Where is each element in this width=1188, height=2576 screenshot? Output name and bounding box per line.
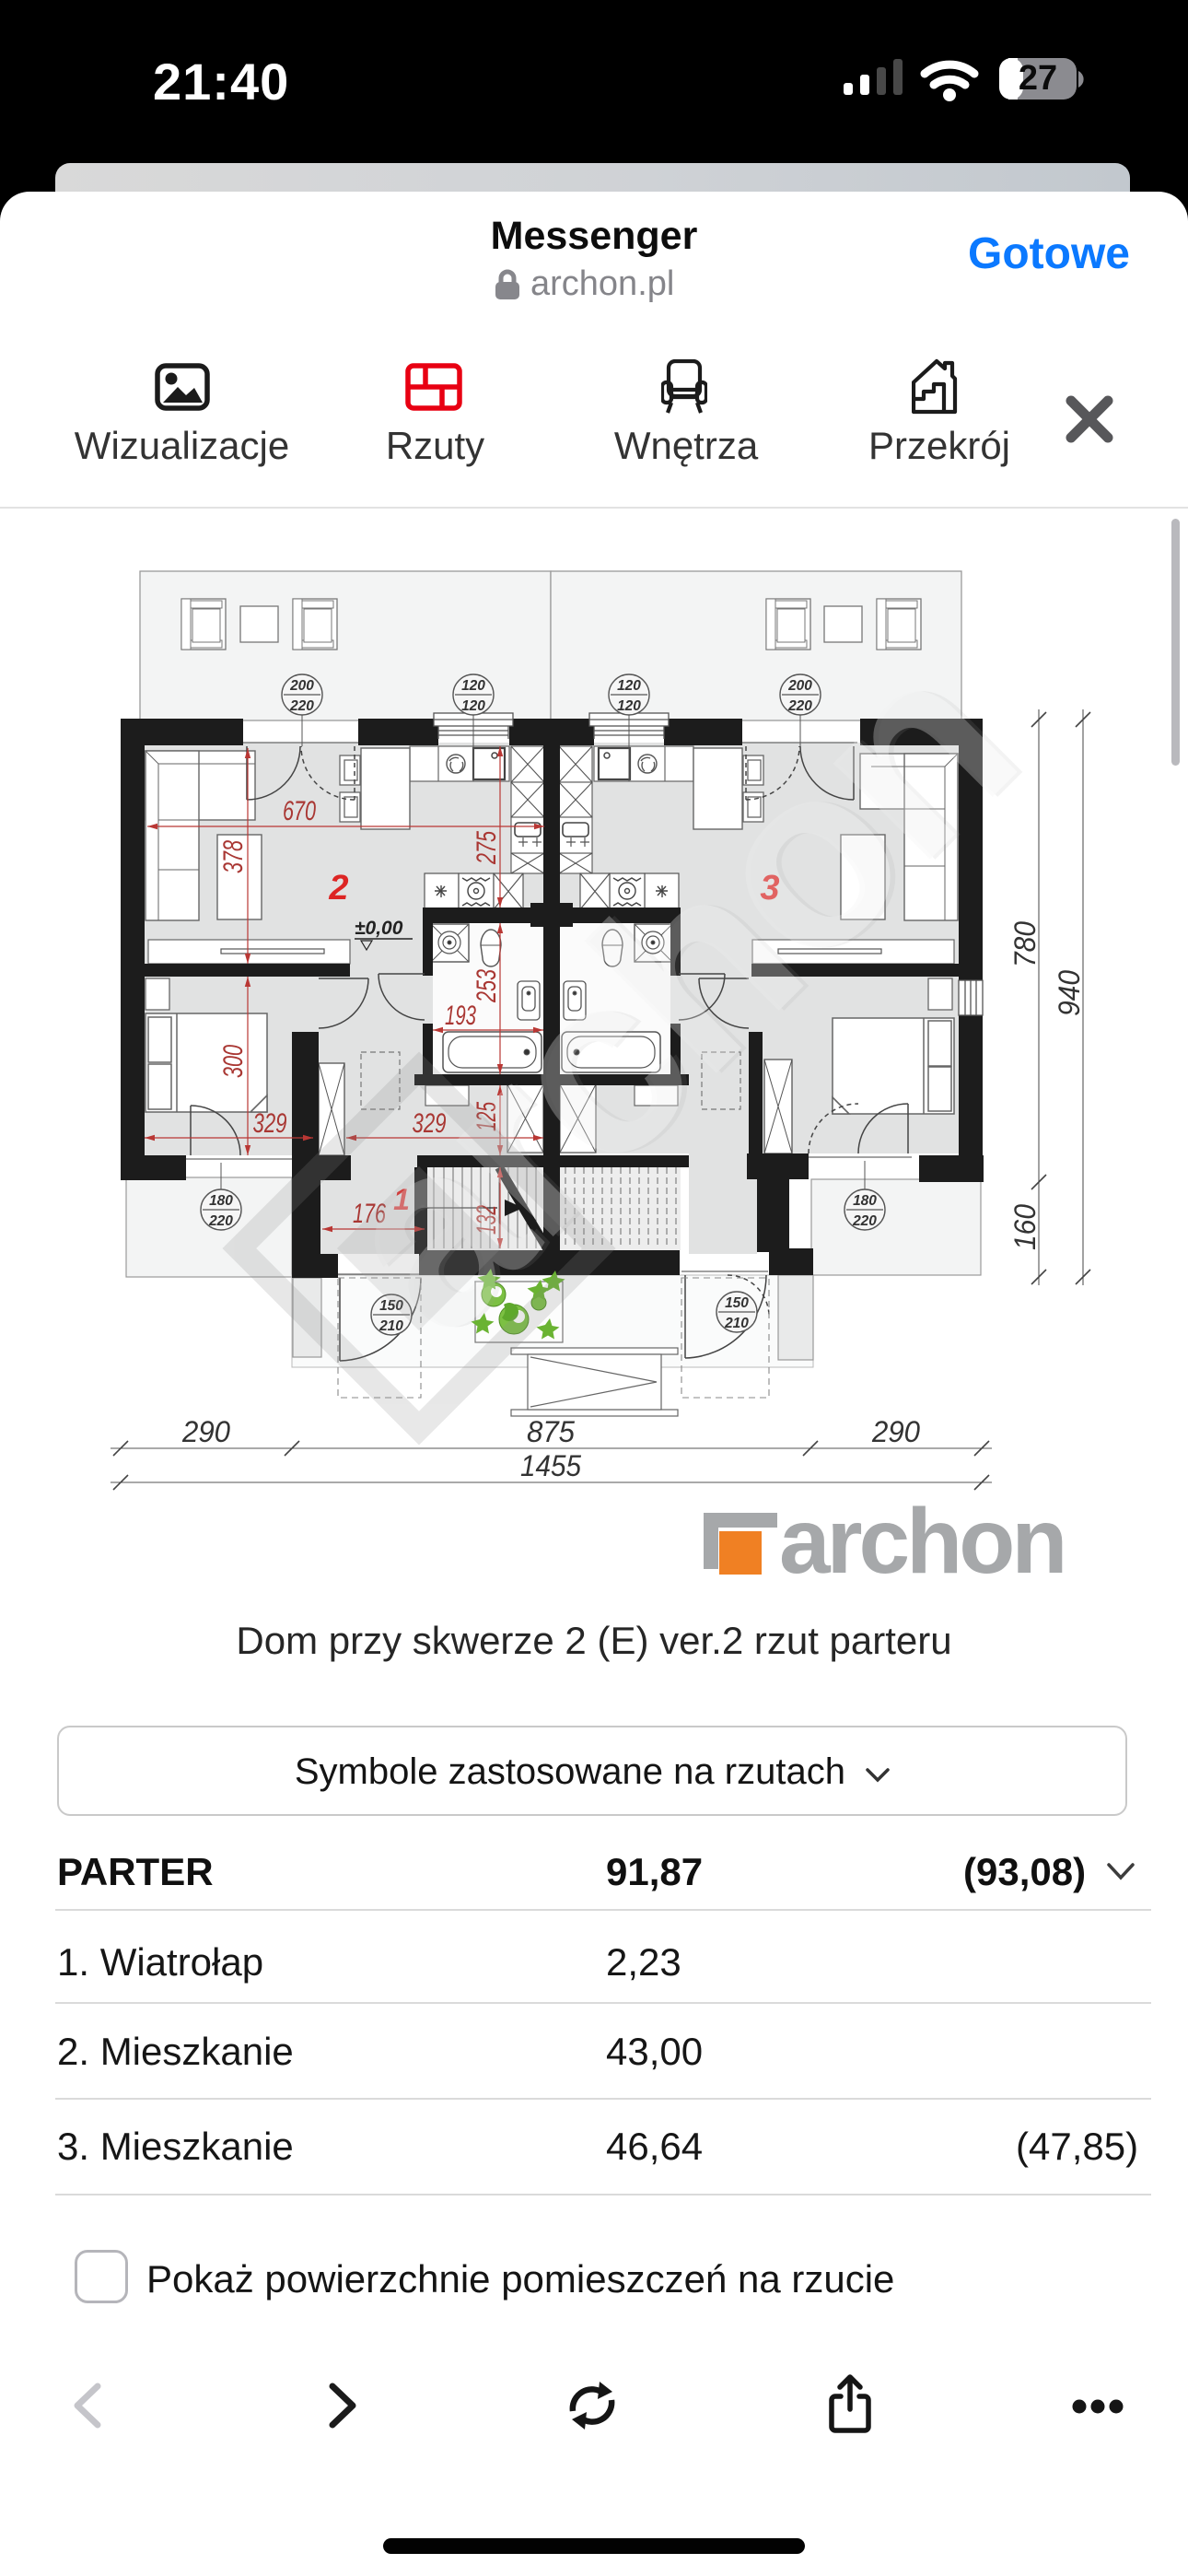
- svg-text:220: 220: [852, 1213, 877, 1229]
- svg-text:150: 150: [725, 1295, 749, 1311]
- svg-text:120: 120: [461, 698, 485, 714]
- svg-text:275: 275: [472, 831, 502, 865]
- svg-text:2: 2: [328, 869, 348, 907]
- svg-text:670: 670: [283, 796, 316, 826]
- svg-text:220: 220: [208, 1213, 233, 1229]
- svg-text:940: 940: [1053, 970, 1086, 1016]
- svg-text:378: 378: [218, 840, 249, 873]
- svg-text:329: 329: [253, 1108, 287, 1139]
- svg-text:120: 120: [617, 678, 641, 694]
- svg-text:160: 160: [1008, 1204, 1042, 1250]
- svg-text:27: 27: [1019, 59, 1057, 98]
- svg-text:780: 780: [1008, 921, 1042, 967]
- svg-text:120: 120: [617, 698, 641, 714]
- svg-text:290: 290: [871, 1415, 920, 1448]
- svg-text:200: 200: [289, 678, 314, 694]
- svg-text:875: 875: [527, 1415, 575, 1448]
- svg-text:180: 180: [209, 1193, 233, 1209]
- svg-text:archon: archon: [779, 1490, 1064, 1593]
- svg-text:290: 290: [181, 1415, 230, 1448]
- svg-text:300: 300: [218, 1045, 249, 1078]
- svg-text:220: 220: [289, 698, 314, 714]
- svg-text:1455: 1455: [520, 1449, 581, 1482]
- svg-text:210: 210: [379, 1318, 403, 1334]
- svg-text:120: 120: [461, 678, 485, 694]
- svg-text:180: 180: [853, 1193, 877, 1209]
- svg-text:210: 210: [724, 1316, 749, 1331]
- svg-text:±0,00: ±0,00: [355, 918, 403, 939]
